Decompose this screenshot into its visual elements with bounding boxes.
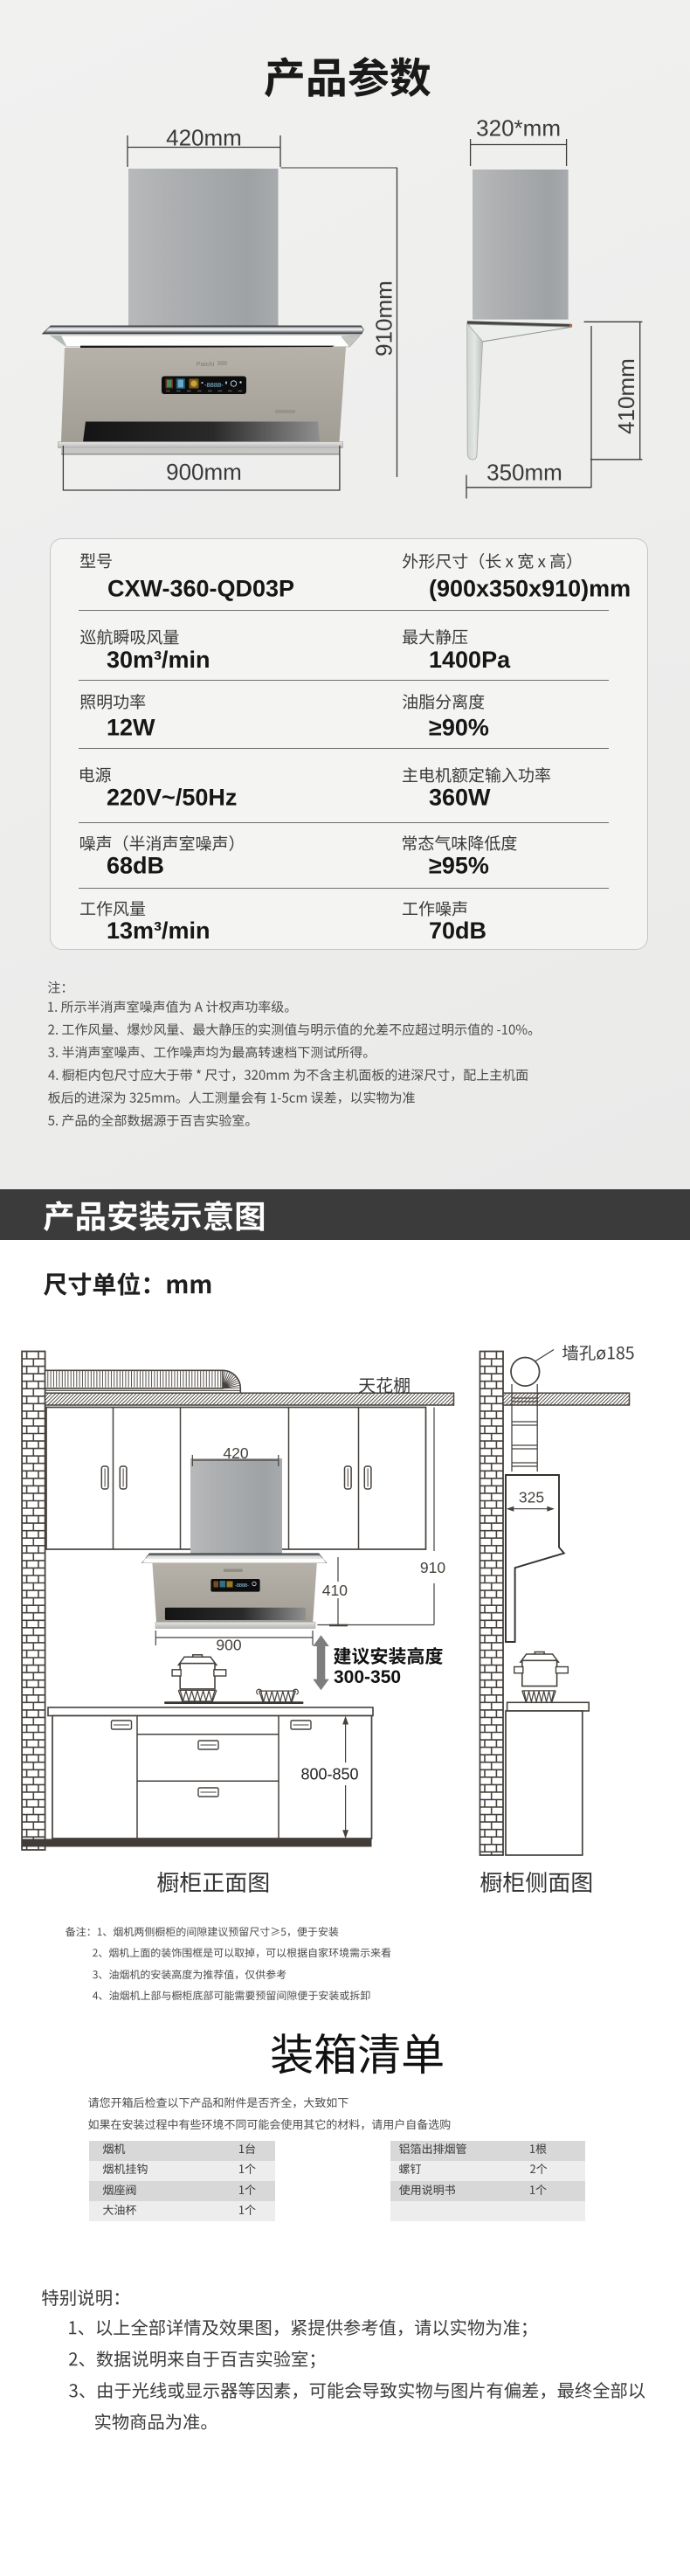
- svg-text:1400Pa: 1400Pa: [429, 647, 511, 673]
- svg-text:70dB: 70dB: [429, 918, 486, 944]
- svg-text:(900x350x910)mm: (900x350x910)mm: [429, 575, 631, 601]
- svg-text:68dB: 68dB: [107, 852, 164, 878]
- svg-text:900: 900: [216, 1637, 241, 1654]
- svg-text:≥95%: ≥95%: [429, 852, 489, 878]
- svg-text:30m³/min: 30m³/min: [107, 647, 210, 673]
- svg-text:910: 910: [420, 1559, 445, 1576]
- svg-text:≥90%: ≥90%: [429, 714, 489, 740]
- svg-text:800-850: 800-850: [300, 1765, 358, 1783]
- svg-text:410: 410: [322, 1582, 348, 1599]
- svg-text:300-350: 300-350: [334, 1667, 401, 1687]
- svg-text:325: 325: [519, 1489, 544, 1506]
- svg-text:12W: 12W: [107, 714, 155, 740]
- svg-text:CXW-360-QD03P: CXW-360-QD03P: [107, 575, 294, 601]
- svg-text:-8888-: -8888-: [235, 1583, 249, 1589]
- svg-text:420: 420: [223, 1444, 248, 1462]
- svg-text:360W: 360W: [429, 785, 491, 811]
- svg-text:13m³/min: 13m³/min: [107, 918, 210, 944]
- svg-text:220V~/50Hz: 220V~/50Hz: [107, 785, 237, 811]
